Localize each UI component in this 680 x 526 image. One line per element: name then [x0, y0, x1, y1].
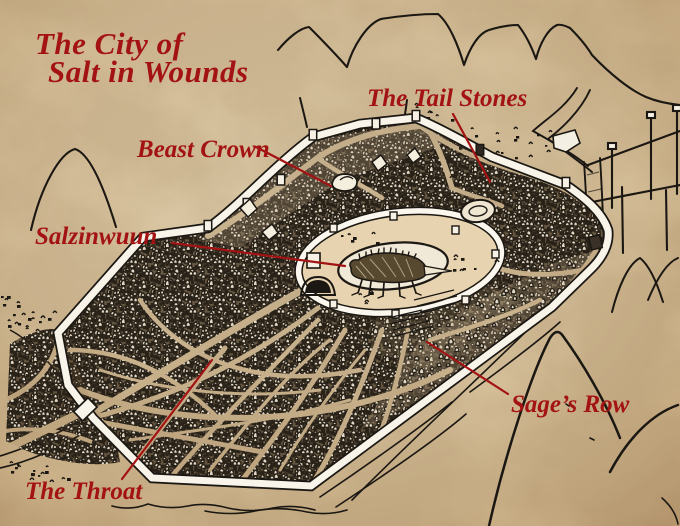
svg-text:Salt in Wounds: Salt in Wounds — [48, 54, 249, 89]
svg-text:Sage’s Row: Sage’s Row — [511, 391, 630, 418]
svg-text:The Tail Stones: The Tail Stones — [367, 85, 527, 112]
svg-text:Salzinwuun: Salzinwuun — [35, 223, 157, 250]
svg-text:The Throat: The Throat — [25, 478, 143, 505]
svg-text:Beast Crown: Beast Crown — [136, 136, 270, 163]
